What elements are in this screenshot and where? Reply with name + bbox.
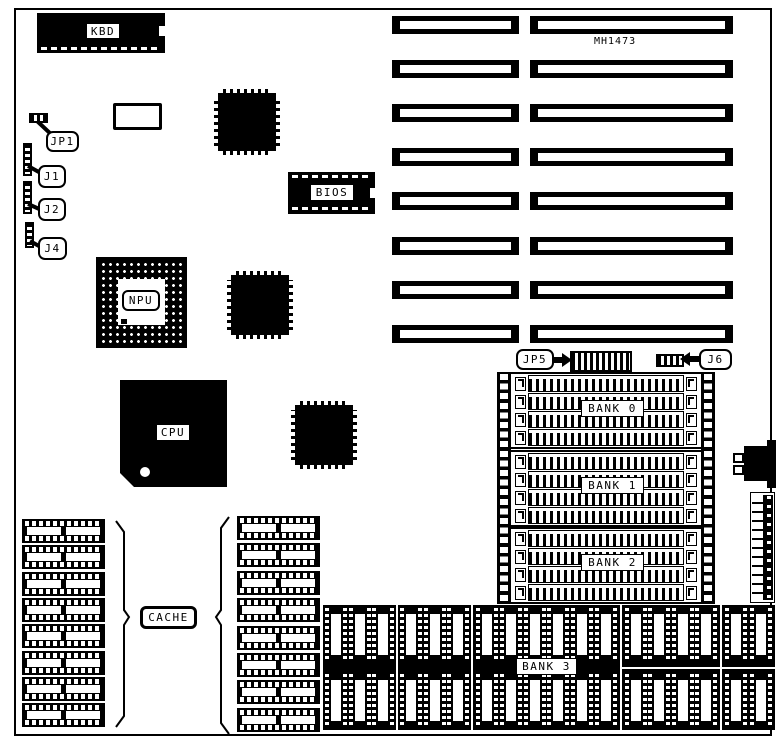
expansion-slot [530, 16, 733, 34]
dram-chip [625, 608, 647, 661]
expansion-slot [392, 281, 519, 299]
dram-chip [500, 674, 522, 727]
expansion-slot [530, 104, 733, 122]
cache-dip-chip [22, 677, 105, 701]
simm-latch [686, 431, 697, 445]
pin-header-j1 [23, 143, 32, 176]
callout-j1: J1 [38, 165, 66, 188]
simm-latch [686, 491, 697, 505]
dram-chip [524, 674, 546, 727]
qfp-chip [227, 271, 293, 339]
kbd-chip: KBD [37, 13, 165, 53]
motherboard-diagram: KBD BIOS NPU CPU [0, 0, 778, 744]
pin1-mark [121, 319, 127, 324]
simm-rail [497, 372, 511, 604]
simm-latch [515, 509, 526, 523]
simm-latch [515, 455, 526, 469]
simm-module [528, 453, 684, 470]
dram-chip [595, 608, 617, 661]
dram-chip [325, 674, 347, 727]
crystal-oscillator [113, 103, 162, 130]
callout-j2: J2 [38, 198, 66, 221]
pin-header-j4 [25, 222, 34, 248]
simm-latch [686, 509, 697, 523]
board-id-label: MH1473 [594, 37, 636, 47]
simm-latch [686, 568, 697, 582]
expansion-slot [530, 60, 733, 78]
dram-chip [476, 674, 498, 727]
simm-latch [515, 568, 526, 582]
dram-chip [500, 608, 522, 661]
bank1-label: BANK 1 [581, 477, 644, 494]
expansion-slot [530, 325, 733, 343]
dram-chip [695, 608, 717, 661]
expansion-slot [530, 148, 733, 166]
jumper-jp5 [570, 351, 632, 372]
cache-dip-chip [237, 708, 320, 732]
simm-latch [686, 586, 697, 600]
cache-dip-chip [237, 598, 320, 622]
expansion-slot [530, 192, 733, 210]
keyboard-connector [733, 440, 778, 488]
cache-dip-chip [22, 572, 105, 596]
bank3-label: BANK 3 [516, 658, 577, 675]
cache-dip-chip [237, 626, 320, 650]
bank3-panel [622, 605, 720, 730]
bank0-label: BANK 0 [581, 400, 644, 417]
dram-chip [725, 608, 747, 661]
dram-chip [625, 674, 647, 727]
simm-latch [686, 377, 697, 391]
simm-socket [499, 429, 713, 446]
kbd-label: KBD [86, 23, 120, 39]
simm-latch [515, 395, 526, 409]
pin-header-j6 [656, 354, 684, 367]
simm-socket [499, 530, 713, 547]
expansion-slot [530, 281, 733, 299]
callout-j6: J6 [699, 349, 732, 370]
expansion-slot [392, 60, 519, 78]
simm-latch [686, 550, 697, 564]
simm-latch [686, 455, 697, 469]
simm-socket [499, 375, 713, 392]
expansion-slot [392, 16, 519, 34]
qfp-chip [291, 401, 357, 469]
cache-dip-chip [237, 543, 320, 567]
cache-dip-chip [22, 703, 105, 727]
expansion-slot [392, 148, 519, 166]
power-header [750, 492, 775, 603]
cache-dip-chip [237, 680, 320, 704]
dram-chip [349, 674, 371, 727]
simm-module [528, 584, 684, 601]
callout-j4: J4 [38, 237, 67, 260]
dram-chip [524, 608, 546, 661]
simm-socket [499, 584, 713, 601]
cache-dip-chip [237, 516, 320, 540]
simm-latch [515, 413, 526, 427]
dram-chip [571, 608, 593, 661]
dram-chip [447, 674, 469, 727]
expansion-slot [392, 104, 519, 122]
cache-dip-chip [22, 519, 105, 543]
dram-chip [648, 608, 670, 661]
bank3-panel [323, 605, 396, 730]
kbd-pin-row [41, 47, 161, 50]
dram-chip [325, 608, 347, 661]
dram-chip [672, 608, 694, 661]
dram-chip [424, 674, 446, 727]
dram-chip [547, 674, 569, 727]
simm-latch [515, 491, 526, 505]
dram-chip [447, 608, 469, 661]
cache-dip-chip [237, 653, 320, 677]
bios-chip: BIOS [288, 172, 375, 214]
simm-module [528, 530, 684, 547]
simm-latch [686, 532, 697, 546]
dram-chip [725, 674, 747, 727]
bank3-panel [398, 605, 471, 730]
simm-module [528, 429, 684, 446]
simm-latch [515, 586, 526, 600]
simm-latch [515, 473, 526, 487]
simm-latch [686, 473, 697, 487]
cache-dip-chip [22, 624, 105, 648]
simm-socket [499, 507, 713, 524]
callout-jp1: JP1 [46, 131, 79, 152]
callout-jp5: JP5 [516, 349, 554, 370]
npu-socket: NPU [96, 257, 187, 348]
cpu-chip: CPU [120, 380, 227, 487]
expansion-slot [392, 192, 519, 210]
pin1-mark [140, 467, 150, 477]
simm-module [528, 507, 684, 524]
jumper-jp1 [29, 113, 48, 123]
simm-latch [515, 532, 526, 546]
bios-label: BIOS [310, 184, 354, 201]
dram-chip [750, 674, 772, 727]
cache-label: CACHE [140, 606, 197, 629]
dram-chip [695, 674, 717, 727]
simm-latch [686, 413, 697, 427]
dram-chip [424, 608, 446, 661]
pin-header-j2 [23, 181, 32, 214]
cpu-label: CPU [156, 424, 190, 441]
simm-rail [701, 372, 715, 604]
simm-module [528, 375, 684, 392]
bank3-panel [722, 605, 775, 730]
simm-latch [515, 550, 526, 564]
simm-socket [499, 453, 713, 470]
bios-notch [370, 188, 375, 198]
qfp-chip [214, 89, 280, 155]
simm-latch [515, 431, 526, 445]
dram-chip [648, 674, 670, 727]
cache-dip-chip [22, 598, 105, 622]
dram-chip [571, 674, 593, 727]
cache-dip-chip [22, 545, 105, 569]
dram-chip [476, 608, 498, 661]
cache-dip-chip [237, 571, 320, 595]
expansion-slot [392, 325, 519, 343]
bank2-label: BANK 2 [581, 554, 644, 571]
simm-latch [686, 395, 697, 409]
dram-chip [672, 674, 694, 727]
expansion-slot [392, 237, 519, 255]
simm-latch [515, 377, 526, 391]
dram-chip [349, 608, 371, 661]
kbd-notch [159, 26, 165, 36]
dram-chip [595, 674, 617, 727]
dram-chip [400, 674, 422, 727]
npu-label: NPU [122, 290, 160, 311]
expansion-slot [530, 237, 733, 255]
dram-chip [372, 674, 394, 727]
dram-chip [372, 608, 394, 661]
dram-chip [750, 608, 772, 661]
dram-chip [400, 608, 422, 661]
cache-dip-chip [22, 651, 105, 675]
dram-chip [547, 608, 569, 661]
